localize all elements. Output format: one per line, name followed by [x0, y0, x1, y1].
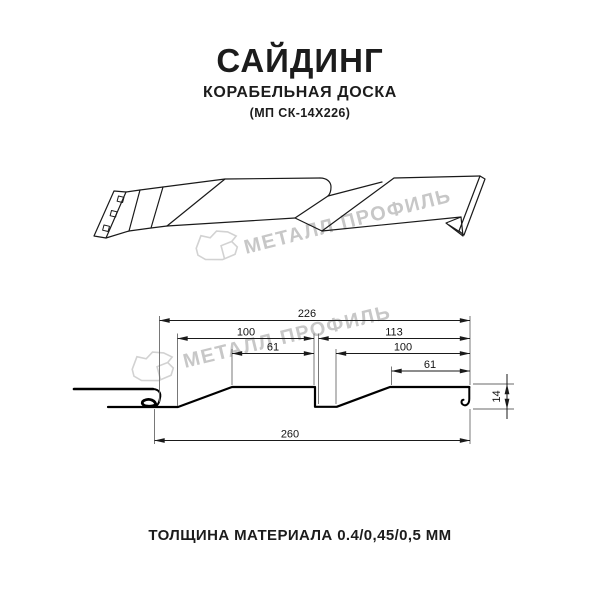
- watermark-text-top: МЕТАЛЛ ПРОФИЛЬ: [242, 185, 454, 259]
- header-block: САЙДИНГ КОРАБЕЛЬНАЯ ДОСКА (МП СК-14Х226): [0, 44, 600, 120]
- page-subtitle: КОРАБЕЛЬНАЯ ДОСКА: [0, 84, 600, 102]
- dim-label-61-left: 61: [267, 342, 279, 354]
- dim-label-113: 113: [385, 327, 403, 339]
- watermark-text-bottom: МЕТАЛЛ ПРОФИЛЬ: [181, 301, 393, 373]
- watermark-logo-top: [195, 229, 239, 262]
- dim-label-100-right: 100: [394, 342, 412, 354]
- nail-hole: [117, 196, 124, 203]
- dim-label-14: 14: [491, 390, 503, 402]
- cross-section-profile: [74, 387, 469, 407]
- dim-label-226: 226: [298, 308, 316, 320]
- nail-hole: [103, 225, 110, 232]
- product-model: (МП СК-14Х226): [0, 106, 600, 120]
- dim-label-260: 260: [281, 429, 299, 441]
- page: САЙДИНГ КОРАБЕЛЬНАЯ ДОСКА (МП СК-14Х226)…: [0, 0, 600, 600]
- dim-label-61-right: 61: [424, 359, 436, 371]
- page-title: САЙДИНГ: [0, 44, 600, 79]
- watermark-logo-bottom: [131, 350, 175, 383]
- nail-hole: [110, 211, 117, 218]
- material-thickness-note: ТОЛЩИНА МАТЕРИАЛА 0.4/0,45/0,5 ММ: [0, 527, 600, 544]
- dim-label-100-left: 100: [237, 327, 255, 339]
- dimension-lines: [155, 321, 508, 441]
